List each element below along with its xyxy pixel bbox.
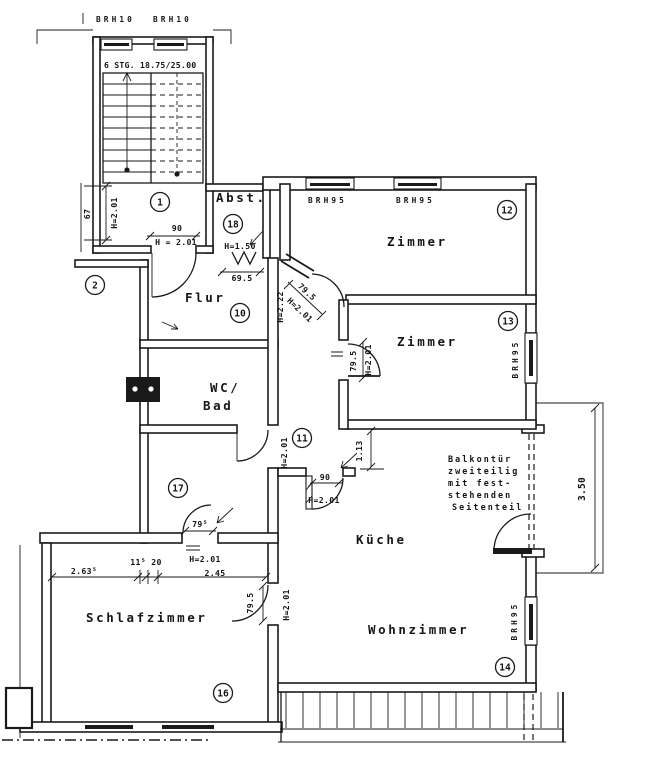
room-label-bad: Bad bbox=[203, 398, 233, 413]
room-tag-11: 11 bbox=[293, 429, 312, 448]
room-label-abst: Abst. bbox=[216, 190, 267, 205]
window-label-brh95-1: BRH95 bbox=[308, 196, 347, 205]
balcony-note-2: zweiteilig bbox=[448, 466, 519, 476]
wall-angled-outer bbox=[281, 261, 309, 278]
room-tag-18: 18 bbox=[224, 215, 243, 234]
room-tag-1-number: 1 bbox=[157, 198, 163, 209]
room-label-zimmer-se: Zimmer bbox=[397, 334, 458, 349]
balcony-note-4: stehenden bbox=[448, 490, 512, 500]
window-schlaf-south-1 bbox=[85, 725, 133, 729]
room-label-zimmer-ne: Zimmer bbox=[387, 234, 448, 249]
dim-schlaf-door-height: H=2.01 bbox=[189, 554, 220, 564]
wall-wc-north bbox=[140, 340, 278, 348]
window-label-brh95-2: BRH95 bbox=[396, 196, 435, 205]
dim-entry-width: 90 bbox=[172, 223, 182, 233]
wall-schlaf-north-1 bbox=[40, 533, 182, 543]
window-label-brh10-2: BRH10 bbox=[153, 15, 192, 24]
room-tag-1: 1 bbox=[151, 193, 170, 212]
dim-kueche-door-width: 90 bbox=[320, 472, 330, 482]
dim-entry-height: H = 2.01 bbox=[155, 237, 197, 247]
window-zimmer-ne-2-sash bbox=[398, 183, 437, 186]
room-tag-12-number: 12 bbox=[501, 206, 513, 217]
leader-flur bbox=[162, 322, 178, 329]
floor-plan-sheet: BRH10 BRH10 6 STG. 18.75/25.00 90 H = 2.… bbox=[0, 0, 646, 757]
stairwell-wall-bottom-right bbox=[196, 246, 213, 253]
stairwell-wall-right bbox=[206, 37, 213, 253]
window-schlaf-south-2 bbox=[162, 725, 214, 729]
room-tag-10-number: 10 bbox=[234, 309, 246, 320]
room-tag-2-number: 2 bbox=[92, 281, 98, 292]
room-tag-14: 14 bbox=[496, 658, 515, 677]
chimney-block bbox=[126, 377, 160, 402]
room-tag-16: 16 bbox=[214, 684, 233, 703]
wall-spine-1 bbox=[268, 258, 278, 425]
wall-schlaf-south bbox=[20, 722, 282, 732]
balcony-note-3: mit fest- bbox=[448, 478, 512, 488]
room-label-kueche: Küche bbox=[356, 532, 407, 547]
dim-schlaf-seg1: 2.63⁵ bbox=[71, 566, 97, 576]
dim-stair-win-width: 67 bbox=[82, 209, 92, 219]
window-label-brh95-3: BRH95 bbox=[511, 340, 520, 379]
wall-angled-inner bbox=[286, 254, 314, 271]
balcony-south bbox=[278, 692, 566, 742]
room-label-wc: WC/ bbox=[210, 380, 240, 395]
staircase bbox=[103, 73, 203, 183]
balcony-note-1: Balkontür bbox=[448, 454, 512, 464]
dim-wc-door-height: H=2.01 bbox=[279, 437, 289, 468]
wall-spine-2 bbox=[268, 468, 278, 583]
wall-wohnzimmer-south bbox=[278, 683, 536, 692]
threshold-marks-1 bbox=[331, 352, 343, 356]
room-tag-12: 12 bbox=[498, 201, 517, 220]
window-zimmer-se-sash bbox=[529, 340, 533, 376]
stair-walkline-down bbox=[123, 73, 131, 170]
wall-wc-south bbox=[140, 425, 237, 433]
window-stair-left-sash bbox=[104, 43, 129, 46]
outline-top-left bbox=[37, 30, 93, 44]
floor-plan-drawing: BRH10 BRH10 6 STG. 18.75/25.00 90 H = 2.… bbox=[0, 0, 646, 757]
stairwell-wall-bottom-left bbox=[93, 246, 151, 253]
dim-balcony-depth: 3.50 bbox=[577, 477, 588, 501]
outline-top-right bbox=[213, 30, 231, 44]
dim-flur-height: H=2.22 bbox=[275, 291, 285, 322]
room-label-flur: Flur bbox=[185, 290, 226, 305]
chimney bbox=[126, 377, 160, 402]
room-tag-17-number: 17 bbox=[172, 484, 184, 495]
room-tag-16-number: 16 bbox=[217, 689, 229, 700]
threshold-marks-2 bbox=[186, 546, 200, 550]
dim-z13-door-height: H=2.01 bbox=[363, 344, 373, 375]
dim-schlaf-seg2: 11⁵ 20 bbox=[130, 557, 161, 567]
room-tag-13-number: 13 bbox=[502, 317, 514, 328]
dim-kueche-door-height: H=2.01 bbox=[308, 495, 339, 505]
stairs-note: 6 STG. 18.75/25.00 bbox=[104, 60, 196, 70]
dim-schlaf-east-width: 79.5 bbox=[245, 593, 255, 614]
chimney-flue-2 bbox=[148, 386, 153, 391]
wall-east-1 bbox=[526, 184, 536, 333]
stair-walkline-dot-2 bbox=[174, 171, 179, 176]
pillar-southwest bbox=[6, 688, 32, 728]
room-tag-17: 17 bbox=[169, 479, 188, 498]
dim-schlaf-east bbox=[259, 582, 267, 625]
room-tag-10: 10 bbox=[231, 304, 250, 323]
window-label-brh95-4: BRH95 bbox=[510, 602, 519, 641]
balcony-note-5: Seitenteil bbox=[452, 502, 523, 512]
wall-spine-3 bbox=[268, 625, 278, 725]
room-tag-2: 2 bbox=[86, 276, 105, 295]
dim-pier-113: 1.13 bbox=[354, 441, 364, 462]
dim-schlaf-east-height: H=2.01 bbox=[281, 589, 291, 620]
room-tag-14-number: 14 bbox=[499, 663, 511, 674]
wall-east-3 bbox=[526, 551, 536, 597]
window-label-brh10-1: BRH10 bbox=[96, 15, 135, 24]
wall-kueche-door-right bbox=[343, 468, 355, 476]
stairwell-wall-left bbox=[93, 37, 100, 253]
door-abst-folding bbox=[232, 252, 256, 264]
dim-abst-height: H=1.50 bbox=[224, 241, 255, 251]
dim-stair-win-height: H=2.01 bbox=[109, 197, 119, 228]
room-label-schlafzimmer: Schlafzimmer bbox=[86, 610, 208, 625]
wall-corridor-east-2 bbox=[339, 380, 348, 429]
wall-zimmer-divider bbox=[346, 295, 536, 304]
balcony-door-leaf bbox=[493, 548, 532, 554]
shaft-wall bbox=[280, 184, 290, 260]
room-tag-18-number: 18 bbox=[227, 220, 239, 231]
window-zimmer-ne-1-sash bbox=[310, 183, 350, 186]
room-tag-13: 13 bbox=[499, 312, 518, 331]
wall-schlaf-north-2 bbox=[218, 533, 278, 543]
room-tag-11-number: 11 bbox=[296, 434, 308, 445]
wall-schlaf-west bbox=[42, 543, 51, 730]
window-wohnzimmer-sash bbox=[529, 604, 533, 640]
dim-s17-door-width: 79⁵ bbox=[192, 519, 208, 529]
dim-z13-door-width: 79.5 bbox=[348, 351, 358, 372]
stair-walkline-dot-1 bbox=[124, 167, 129, 172]
leader-s17-door bbox=[217, 508, 233, 523]
balcony-door-arc bbox=[494, 514, 531, 551]
balcony-east bbox=[536, 403, 603, 573]
window-stair-right-sash bbox=[157, 43, 184, 46]
balcony-east-outline bbox=[536, 403, 603, 573]
room-label-wohnzimmer: Wohnzimmer bbox=[368, 622, 469, 637]
wall-flur-jog bbox=[75, 260, 148, 267]
door-wc-arc bbox=[237, 430, 268, 461]
railing-posts bbox=[286, 692, 558, 728]
chimney-flue-1 bbox=[132, 386, 137, 391]
dim-abst-width: 69.5 bbox=[232, 273, 253, 283]
dim-schlaf-seg3: 2.45 bbox=[205, 568, 226, 578]
balcony-east-dim-line bbox=[591, 404, 599, 572]
